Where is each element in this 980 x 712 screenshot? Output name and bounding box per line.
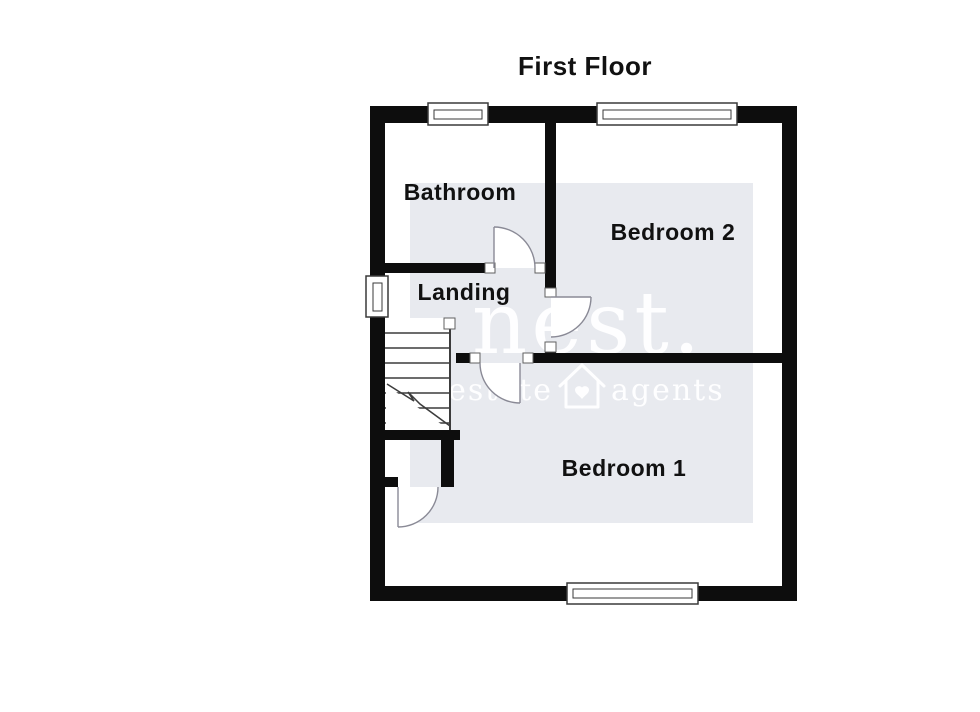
wall-closet-right [441, 440, 454, 487]
wall-exterior-right [782, 106, 797, 601]
bedroom2-door-jamb-bottom [545, 342, 556, 352]
wall-below-stairs [385, 430, 460, 440]
wall-bedroom1-stub-left [456, 353, 470, 363]
bathroom-window [428, 103, 488, 125]
wall-exterior-left [370, 106, 385, 601]
bedroom1-window [567, 583, 698, 604]
wall-bathroom-landing [385, 263, 485, 273]
wall-bedroom1-bedroom2 [533, 353, 782, 363]
floorplan-drawing: nest. estate agents [0, 0, 980, 712]
room-label-bathroom: Bathroom [404, 179, 517, 206]
room-label-bedroom2: Bedroom 2 [611, 219, 736, 246]
page-title: First Floor [518, 51, 652, 82]
floorplan-page: nest. estate agents [0, 0, 980, 712]
landing-window [366, 276, 388, 317]
watermark-tagline-left: estate [448, 373, 553, 408]
bedroom2-door-jamb-top [545, 288, 556, 297]
bedroom1-door-jamb-right [523, 353, 533, 363]
bedroom2-window [597, 103, 737, 125]
room-label-bedroom1: Bedroom 1 [562, 455, 687, 482]
bathroom-door-jamb-right [535, 263, 545, 273]
stair-newel-post [444, 318, 455, 329]
watermark-tagline-right: agents [611, 373, 725, 408]
wall-bathroom-bedroom2 [545, 123, 556, 288]
bedroom1-door-jamb-left [470, 353, 480, 363]
room-label-landing: Landing [418, 279, 511, 306]
wall-closet-left-stub [385, 477, 398, 487]
